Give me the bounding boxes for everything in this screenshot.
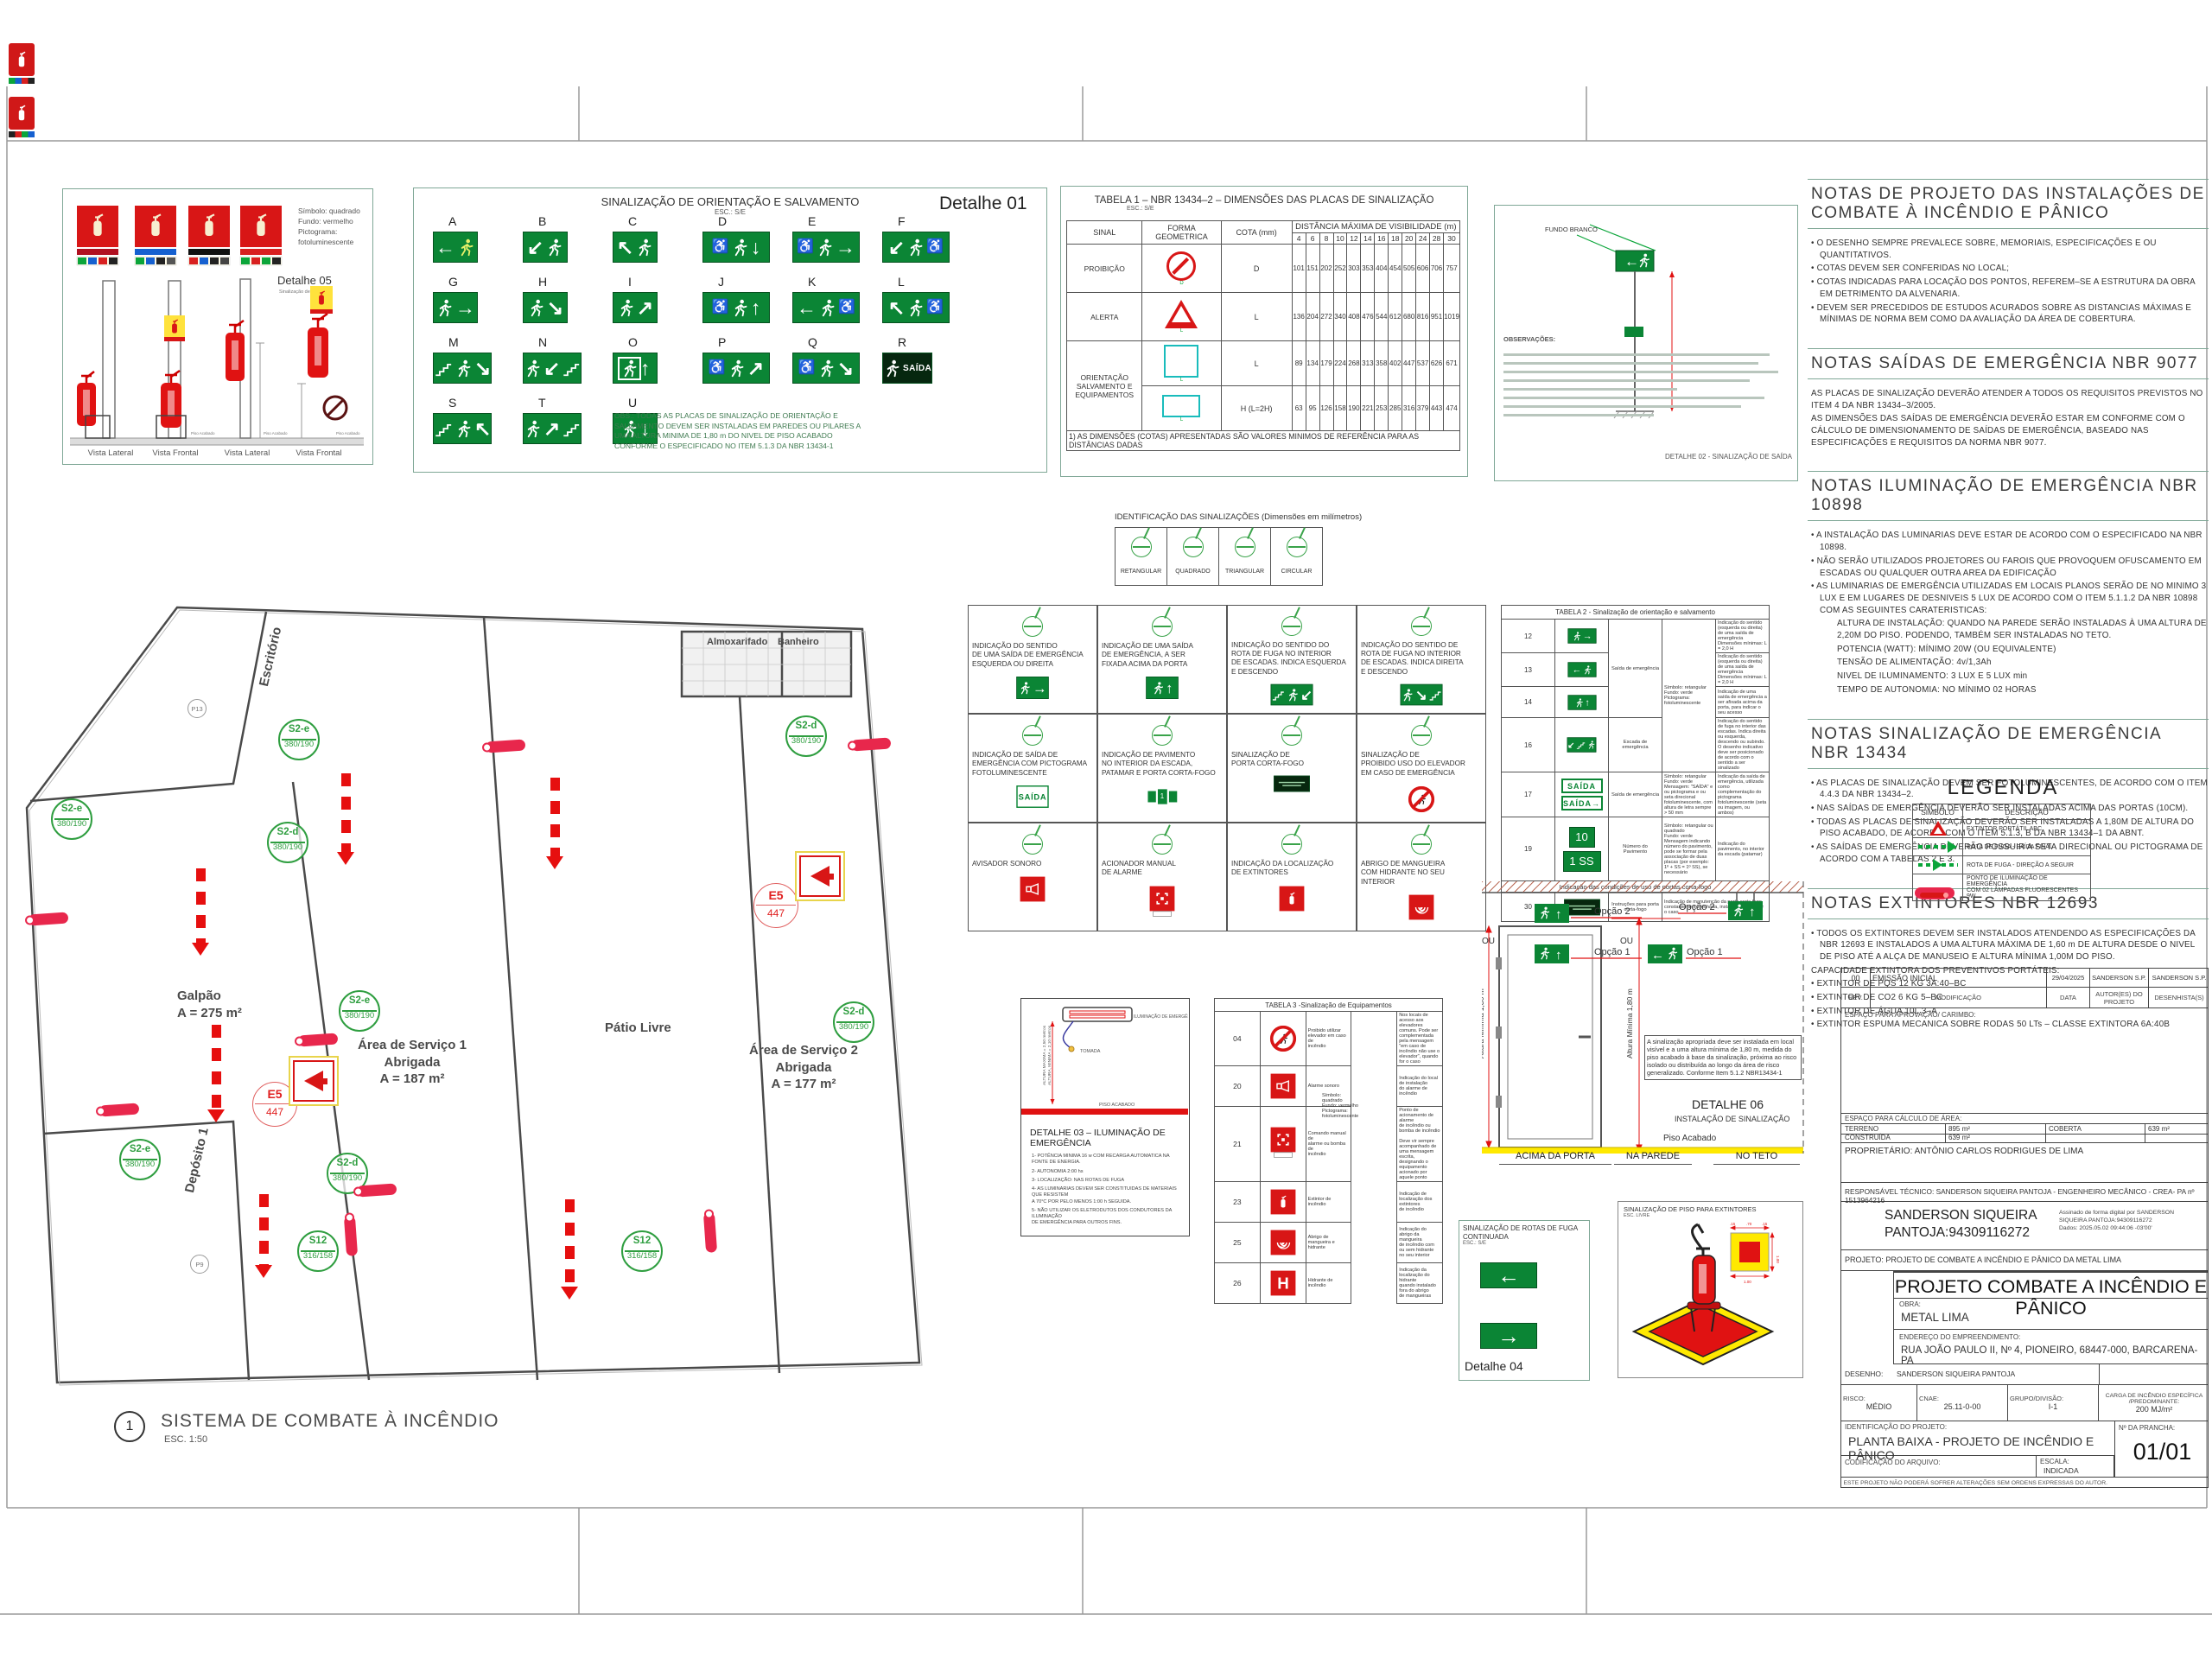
runner-icon — [818, 299, 836, 317]
identificacao-desc: AVISADOR SONORO — [972, 860, 1041, 868]
d5-legend-1: Símbolo: quadrado — [298, 207, 360, 215]
dim-letter: L — [1144, 328, 1218, 334]
arrow-icon: → — [836, 238, 855, 257]
t3-num: 25 — [1215, 1223, 1261, 1263]
signage-tag-balloon: S2-d380/190 — [785, 715, 827, 757]
dim-100: 1.00 — [1744, 1280, 1751, 1284]
identificacao-cell: INDICAÇÃO DO SENTIDO DE UMA SAÍDA DE EME… — [968, 605, 1097, 714]
tb-carga-v: 200 MJ/m² — [2136, 1405, 2173, 1414]
tb-escala-v: INDICADA — [2044, 1466, 2079, 1475]
svg-text:↑: ↑ — [1749, 905, 1756, 919]
runner-icon — [1416, 794, 1427, 804]
d2-obs-title: OBSERVAÇÕES: — [1503, 335, 1555, 343]
t1-value: 379 — [1416, 386, 1430, 431]
identificacao-desc: INDICAÇÃO DO SENTIDO DE UMA SAÍDA DE EME… — [972, 642, 1084, 669]
tb-construida-l: CONSTRUÍDA — [1845, 1134, 1891, 1141]
identificacao-cell: SINALIZAÇÃO DE PROIBIDO USO DO ELEVADOR … — [1357, 714, 1486, 823]
tb-desenho-v: SANDERSON SIQUEIRA PANTOJA — [1897, 1370, 2015, 1378]
plan-esc: ESC. 1:50 — [164, 1434, 207, 1445]
tb-footer: ESTE PROJETO NÃO PODERÁ SOFRER ALTERAÇÕE… — [1841, 1480, 2107, 1486]
panel-piso-extintores: SINALIZAÇÃO DE PISO PARA EXTINTORES ESC.… — [1618, 1201, 1803, 1378]
equipment-sign: ♿ H — [1270, 1190, 1295, 1215]
room-label: Área de Serviço 1 Abrigada A = 187 m² — [339, 1037, 486, 1088]
runner-icon — [1018, 681, 1031, 694]
sign-pictogram: ↙ ♿ H — [1270, 684, 1313, 706]
t1-h-dist: DISTÂNCIA MÁXIMA DE VISIBILIDADE (m) — [1292, 221, 1459, 233]
identificacao-desc: ABRIGO DE MANGUEIRA COM HIDRANTE NO SEU … — [1361, 860, 1445, 887]
tb-endereco-v: RUA JOÃO PAULO II, Nº 4, PIONEIRO, 68447… — [1901, 1345, 2208, 1366]
t1-dist-col: 6 — [1306, 233, 1319, 245]
arrow-icon: → — [455, 298, 475, 318]
tb-rev-des: SANDERSON S.P. — [2149, 969, 2209, 987]
d4-esc: ESC.: S/E — [1463, 1241, 1589, 1246]
stairs-icon — [1428, 688, 1442, 702]
room-label: Pátio Livre — [605, 1020, 671, 1037]
stairs-icon — [434, 359, 453, 378]
t2-sign: 10 1 SS — [1555, 817, 1609, 881]
runner-icon — [731, 299, 749, 317]
tb-terreno-l: TERRENO — [1845, 1125, 1878, 1133]
t1-value: 476 — [1361, 293, 1375, 341]
alarm-button-icon — [1154, 891, 1169, 906]
hydrant-letter-icon: H — [1277, 1274, 1289, 1293]
t3-num: 26 — [1215, 1263, 1261, 1304]
dim-15: .15 — [1730, 1222, 1736, 1226]
tag-balloon-icon — [1152, 834, 1173, 855]
runner-icon — [1401, 688, 1414, 701]
runner-icon — [545, 238, 563, 257]
legend-symbol — [1913, 856, 1963, 874]
signage-tag-balloon: S2-d380/190 — [833, 1001, 874, 1043]
signage-plate-cell: A ← ♿ H — [433, 214, 523, 263]
arrow-icon: ↑ — [640, 359, 651, 378]
view-label: Vista Frontal — [296, 448, 341, 458]
alarm-button-icon — [1275, 1132, 1290, 1147]
tb-obra-v: METAL LIMA — [1901, 1311, 1969, 1324]
signage-plate-cell: B ↙ ♿ H — [523, 214, 613, 263]
tb-proprietario: PROPRIETÁRIO: ANTÔNIO CARLOS RODRIGUES D… — [1845, 1147, 2083, 1156]
d6-subtitle: INSTALAÇÃO DE SINALIZAÇÃO — [1675, 1115, 1789, 1123]
shape-cell: RETANGULAR — [1115, 527, 1167, 586]
t3-sym-merged: Símbolo: quadrado Fundo: vermelho Pictog… — [1322, 1093, 1360, 1119]
panel-detalhe-01: SINALIZAÇÃO DE ORIENTAÇÃO E SALVAMENTO E… — [413, 188, 1047, 473]
t1-value: 252 — [1333, 245, 1347, 293]
t3-sign: ♿ H — [1260, 1066, 1306, 1107]
identificacao-cell: ACIONADOR MANUAL DE ALARME ♿ H — [1097, 823, 1227, 931]
extinguisher-icon — [12, 50, 31, 69]
signage-plate-cell: C ↖ ♿ H — [613, 214, 702, 263]
note-line: O DESENHO SEMPRE PREVALECE SOBRE, MEMORI… — [1808, 238, 2209, 261]
arrow-icon: ↘ — [1415, 688, 1427, 702]
d6-piso: Piso Acabado — [1663, 1134, 1716, 1143]
t2-sym: Símbolo: retangular Fundo: verde Pictogr… — [1662, 620, 1716, 772]
d6-title: DETALHE 06 — [1692, 1097, 1764, 1111]
equipment-sign: ♿ H — [1270, 1230, 1295, 1255]
exit-sign-plate: ↘ ♿ H — [433, 353, 492, 384]
altura-label: Altura Mínima 1,80 m — [1482, 988, 1485, 1058]
t1-value: 474 — [1444, 386, 1460, 431]
wheelchair-icon: ♿ — [712, 301, 729, 315]
wheelchair-icon: ♿ — [838, 301, 855, 315]
tb-construida-v: 639 m² — [1948, 1134, 1970, 1141]
t1-value: 63 — [1292, 386, 1306, 431]
tb-h-autor: AUTOR(ES) DO PROJETO — [2090, 988, 2149, 1007]
sign-pictogram: ♿ H — [1409, 894, 1434, 919]
extinguisher-icon — [1275, 1194, 1290, 1209]
tb-rev-data: 29/04/2025 — [2047, 969, 2090, 987]
identificacao-desc: INDICAÇÃO DO SENTIDO DE ROTA DE FUGA NO … — [1361, 641, 1464, 677]
d6-note-box: A sinalização apropriada deve ser instal… — [1644, 1035, 1802, 1080]
t1-r4-cota: H (L=2H) — [1221, 386, 1292, 431]
t1-value: 126 — [1319, 386, 1333, 431]
t3-sign: ♿ H — [1260, 1012, 1306, 1066]
t3-title: TABELA 3 -Sinalização de Equipamentos — [1215, 999, 1443, 1012]
tb-carga-l: CARGA DE INCÊNDIO ESPECÍFICA /PREDOMINAN… — [2101, 1393, 2208, 1405]
svg-text:↑: ↑ — [1555, 907, 1562, 922]
note-line: ALTURA DE INSTALAÇÃO: QUANDO NA PAREDE S… — [1808, 618, 2209, 641]
panel-detalhe-02: FUNDO BRANCO ← OBSERVAÇÕES: DETALHE 02 -… — [1494, 205, 1798, 481]
tb-risco-l: RISCO: — [1843, 1395, 1866, 1402]
t2-cat: Escada de emergência — [1609, 718, 1662, 772]
stamp-icon — [9, 43, 35, 76]
identificacao-desc: INDICAÇÃO DE SAÍDA DE EMERGÊNCIA COM PIC… — [972, 751, 1087, 778]
t1-value: 706 — [1430, 245, 1444, 293]
sign-pictogram: ♿ H — [1274, 775, 1310, 791]
d5-legend-3: Pictograma: — [298, 227, 337, 236]
sign-pictogram: ↑ ♿ H — [1146, 677, 1178, 699]
arrow-icon: → — [1033, 680, 1047, 695]
note-line: AS PLACAS DE SINALIZAÇÃO DEVERÃO ATENDER… — [1808, 388, 2209, 411]
tb-calc: ESPAÇO PARA CÁLCULO DE ÁREA: — [1845, 1115, 1961, 1122]
alert-triangle-shape: L — [1142, 293, 1221, 341]
plate-letter: J — [718, 275, 724, 289]
tb-projeto: PROJETO: PROJETO DE COMBATE A INCÊNDIO E… — [1845, 1255, 2121, 1264]
signage-plate-cell: P ↗ ♿ H — [702, 335, 792, 384]
arrow-icon: ↗ — [543, 419, 560, 439]
t1-value: 505 — [1402, 245, 1416, 293]
shape-label: TRIANGULAR — [1219, 569, 1270, 575]
identificacao-desc: INDICAÇÃO DE UMA SAÍDA DE EMERGÊNCIA, A … — [1102, 642, 1193, 669]
t2-sign: ↑ — [1555, 687, 1609, 718]
t1-value: 316 — [1402, 386, 1416, 431]
opcao2-label: Opção 2 — [1679, 902, 1715, 912]
t3-desc: Indicação do local de instalação do alar… — [1397, 1066, 1443, 1107]
wheelchair-icon: ♿ — [926, 301, 944, 315]
signage-tag-balloon: S2-e380/190 — [119, 1139, 161, 1180]
t3-sign: ♿ H — [1260, 1182, 1306, 1223]
t1-r3-cota: L — [1221, 341, 1292, 386]
point-marker: P9 — [190, 1255, 209, 1274]
identificacao-cell: INDICAÇÃO DO SENTIDO DE ROTA DE FUGA NO … — [1357, 605, 1486, 714]
view-label: Vista Lateral — [88, 448, 134, 458]
dim-100: 1.00 — [1776, 1255, 1780, 1263]
t1-value: 680 — [1402, 293, 1416, 341]
d3-lum-label: ILUMINAÇÃO DE EMERGÊNCIA — [1134, 1013, 1188, 1020]
stamp-icon-chips — [9, 131, 35, 137]
horn-icon — [1274, 1078, 1291, 1095]
t1-value: 224 — [1333, 341, 1347, 386]
route-arrow-left-sign: ← — [1480, 1262, 1537, 1288]
d5-legend-4: fotoluminescente — [298, 238, 354, 246]
panel-detalhe-03: ILUMINAÇÃO DE EMERGÊNCIA TOMADA ALTURA M… — [1020, 998, 1190, 1236]
exit-sign-plate: ↙ ♿ H — [523, 232, 568, 263]
legend-title: LEGENDA — [1912, 776, 2094, 800]
exit-sign-plate: ↗ ♿ H — [702, 353, 770, 384]
panel-detalhe-04: SINALIZAÇÃO DE ROTAS DE FUGA CONTINUADA … — [1459, 1220, 1590, 1381]
tb-terreno-v: 895 m² — [1948, 1125, 1970, 1133]
plate-letter: H — [538, 275, 547, 289]
exit-sign-plate: → ♿ H — [433, 292, 478, 323]
drawing-sheet: Símbolo: quadrado Fundo: vermelho Pictog… — [0, 0, 2212, 1659]
t2-num: 19 — [1502, 817, 1555, 881]
identificacao-desc: SINALIZAÇÃO DE PORTA CORTA-FOGO — [1231, 751, 1304, 769]
t3-num: 21 — [1215, 1107, 1261, 1182]
t3-desc: Nos locais de acesso aos elevadores comu… — [1397, 1012, 1443, 1066]
tb-obra-l: OBRA: — [1899, 1300, 1921, 1308]
t1-r1-sinal: PROIBIÇÃO — [1067, 245, 1142, 293]
tb-h-rev: REV. — [1841, 988, 1871, 1007]
legend-desc: ROTA DE FUGA - SAÍDA FINAL — [1963, 838, 2091, 856]
panel-detalhe-05: Símbolo: quadrado Fundo: vermelho Pictog… — [62, 188, 373, 465]
t1-value: 101 — [1292, 245, 1306, 293]
signage-plate-cell: N ↙ ♿ H — [523, 335, 613, 384]
signage-tag-balloon: S2-e380/190 — [278, 719, 320, 760]
plate-letter: L — [898, 275, 905, 289]
exit-sign-plate: ↙ ♿ H — [882, 232, 950, 263]
signage-plate-cell: F ↙ ♿ H — [882, 214, 972, 263]
runner-icon — [1152, 681, 1165, 694]
extinguisher-tag-balloon: E5447 — [753, 883, 798, 928]
plate-letter: O — [628, 335, 638, 349]
t2-cat: Saída de emergência — [1609, 772, 1662, 817]
t1-dist-col: 28 — [1430, 233, 1444, 245]
t3-sign: ♿ H — [1260, 1107, 1306, 1182]
exit-sign-plate: ↓ ♿ H — [702, 232, 770, 263]
t1-value: 303 — [1347, 245, 1361, 293]
room-label: Banheiro — [778, 636, 819, 648]
exit-sign-plate: ↘ ♿ H — [523, 292, 568, 323]
plate-letter: A — [448, 214, 456, 228]
identificacao-desc: INDICAÇÃO DE PAVIMENTO NO INTERIOR DA ES… — [1102, 751, 1216, 778]
dim-letter: D — [1144, 281, 1218, 286]
plate-letter: I — [628, 275, 632, 289]
identificacao-title: IDENTIFICAÇÃO DAS SINALIZAÇÕES (Dimensõe… — [1115, 512, 1362, 522]
tb-rev-num: 00 — [1841, 969, 1871, 987]
t1-value: 454 — [1389, 245, 1402, 293]
t1-value: 340 — [1333, 293, 1347, 341]
t2-desc: Indicação do sentido de fuga no interior… — [1716, 718, 1770, 772]
plate-letter: M — [448, 335, 459, 349]
identificacao-cell: INDICAÇÃO DA LOCALIZAÇÃO DE EXTINTORES ♿… — [1227, 823, 1357, 931]
identificacao-cell: INDICAÇÃO DE PAVIMENTO NO INTERIOR DA ES… — [1097, 714, 1227, 823]
piso-acabado-label: Piso Acabado — [336, 431, 360, 435]
t1-r2-cota: L — [1221, 293, 1292, 341]
opcao2-label: Opção 2 — [1594, 906, 1630, 917]
tb-h-data: DATA — [2047, 988, 2090, 1007]
runner-icon — [1286, 688, 1299, 701]
t1-value: 268 — [1347, 341, 1361, 386]
tag-balloon-icon — [1281, 725, 1302, 746]
d3-title: DETALHE 03 – ILUMINAÇÃO DE EMERGÊNCIA — [1030, 1128, 1189, 1148]
tag-balloon-icon — [1411, 616, 1432, 636]
exit-sign-plate: ↖ ♿ H — [613, 232, 658, 263]
t2-num: 17 — [1502, 772, 1555, 817]
legend-desc: PONTO DE ILUMINAÇÃO DE EMERGÊNCIA COM 02… — [1963, 874, 2091, 901]
t1-value: 626 — [1430, 341, 1444, 386]
signage-tag-balloon: S12316/158 — [621, 1230, 663, 1272]
signage-plate-cell: R ♿ SAÍDA H — [882, 335, 972, 384]
t1-value: 402 — [1389, 341, 1402, 386]
runner-icon — [816, 238, 834, 257]
tb-signature-info: Assinado de forma digital por SANDERSON … — [2059, 1209, 2174, 1233]
hose-spiral-icon — [1414, 899, 1430, 915]
escape-route-arrow — [549, 778, 561, 868]
note-line: A INSTALAÇÃO DAS LUMINARIAS DEVE ESTAR D… — [1808, 530, 2209, 553]
tag-balloon-icon — [1411, 725, 1432, 746]
pe-esc: ESC. LIVRE — [1624, 1213, 1802, 1218]
d3-tomada-label: TOMADA — [1080, 1049, 1101, 1054]
tag-balloon-icon — [1152, 725, 1173, 746]
t1-value: 134 — [1306, 341, 1319, 386]
t2-num: 14 — [1502, 687, 1555, 718]
shape-label: CIRCULAR — [1271, 569, 1322, 575]
plate-letter: D — [718, 214, 727, 228]
t1-value: 158 — [1333, 386, 1347, 431]
t2-title: TABELA 2 - Sinalização de orientação e s… — [1502, 606, 1770, 620]
t3-name: Proibido utilizar elevador em caso de in… — [1306, 1012, 1351, 1066]
tb-prancha-l: Nº DA PRANCHA: — [2119, 1424, 2175, 1432]
t2-desc: Indicação do sentido (esquerda ou direit… — [1716, 620, 1770, 653]
stairs-icon — [1271, 688, 1285, 702]
legend-symbol — [1913, 820, 1963, 838]
tb-coberta-v: 639 m² — [2148, 1125, 2170, 1133]
t1-dist-col: 18 — [1389, 233, 1402, 245]
signage-plate-cell: T ↗ ♿ H — [523, 396, 613, 444]
tb-rev-autor: SANDERSON S.P. — [2090, 969, 2149, 987]
t3-desc: Indicação de localização dos extintores … — [1397, 1182, 1443, 1223]
t1-value: 202 — [1319, 245, 1333, 293]
stairs-icon — [434, 419, 453, 438]
detalhe-05-drawing: Símbolo: quadrado Fundo: vermelho Pictog… — [63, 189, 372, 463]
t1-title: TABELA 1 – NBR 13434–2 – DIMENSÕES DAS P… — [1066, 195, 1462, 206]
arrow-icon: ↙ — [543, 359, 560, 378]
runner-icon — [906, 299, 925, 317]
t1-value: 443 — [1430, 386, 1444, 431]
t3-name: Abrigo de mangueira e hidrante — [1306, 1223, 1351, 1263]
tb-rev-mod: EMISSÃO INICIAL — [1871, 969, 2047, 987]
note-line: TEMPO DE AUTONOMIA: NO MÍNIMO 02 HORAS — [1808, 684, 2209, 696]
tb-grupo-v: I-1 — [2049, 1402, 2058, 1411]
signage-tag-balloon: S2-e380/190 — [339, 990, 380, 1032]
tb-escala-l: ESCALA: — [2040, 1458, 2069, 1465]
tag-balloon-icon — [1022, 725, 1043, 746]
shape-cell: QUADRADO — [1166, 527, 1219, 586]
t3-name: Extintor de incêndio — [1306, 1182, 1351, 1223]
piso-acabado-label: Piso Acabado — [191, 431, 215, 435]
plate-text: SAÍDA — [903, 364, 931, 373]
arrow-icon: ↓ — [751, 238, 761, 257]
notes-column: NOTAS DE PROJETO DAS INSTALAÇÕES DE COMB… — [1808, 179, 2209, 1053]
rect-shape: L — [1142, 386, 1221, 431]
runner-icon — [883, 359, 901, 378]
identificacao-cell: INDICAÇÃO DO SENTIDO DO ROTA DE FUGA NO … — [1227, 605, 1357, 714]
t1-value: 179 — [1319, 341, 1333, 386]
arrow-icon: ↑ — [1166, 680, 1173, 695]
t3-name: Hidrante de incêndio — [1306, 1263, 1351, 1304]
t1-value: 1019 — [1444, 293, 1460, 341]
legend-desc: ROTA DE FUGA - DIREÇÃO A SEGUIR — [1963, 856, 2091, 874]
runner-icon — [524, 359, 542, 378]
d3-piso: PISO ACABADO — [1099, 1103, 1135, 1108]
d6-pos-teto: NO TETO — [1713, 1151, 1800, 1165]
t2-cat: Saída de emergência — [1609, 620, 1662, 718]
signage-tag-balloon: S12316/158 — [297, 1230, 339, 1272]
t3-num: 04 — [1215, 1012, 1261, 1066]
runner-icon — [527, 299, 545, 317]
tb-signature-name: SANDERSON SIQUEIRA PANTOJA:94309116272 — [1885, 1207, 2037, 1242]
t3-desc: Ponto de acionamento de alarme de incênd… — [1397, 1107, 1443, 1182]
t1-dist-col: 12 — [1347, 233, 1361, 245]
dim-70: .70 — [1746, 1222, 1752, 1226]
pe-title: SINALIZAÇÃO DE PISO PARA EXTINTORES — [1624, 1205, 1802, 1213]
identificacao-desc: INDICAÇÃO DO SENTIDO DO ROTA DE FUGA NO … — [1231, 641, 1346, 677]
wheelchair-icon: ♿ — [797, 240, 814, 254]
arrow-icon: ← — [797, 298, 817, 318]
svg-text:↑: ↑ — [1555, 948, 1562, 963]
hose-spiral-icon — [1274, 1235, 1291, 1251]
note-line: TENSÃO DE ALIMENTAÇÃO: 4v/1,3Ah — [1808, 657, 2209, 669]
t1-h-sinal: SINAL — [1067, 221, 1142, 245]
tb-cnae-v: 25.11-0-00 — [1944, 1402, 1981, 1411]
note-section-title: NOTAS SINALIZAÇÃO DE EMERGÊNCIA NBR 1343… — [1808, 719, 2209, 769]
sign-pictogram: ♿ H — [1150, 886, 1175, 911]
extinguisher-floor-sign — [289, 1056, 339, 1106]
room-label: Galpão A = 275 m² — [177, 988, 242, 1021]
t1-value: 190 — [1347, 386, 1361, 431]
runner-icon — [635, 238, 653, 257]
tabela-3: TABELA 3 -Sinalização de Equipamentos 04… — [1214, 998, 1443, 1304]
sign-pictogram: ♿ H — [1280, 886, 1305, 911]
arrow-icon: ↖ — [617, 238, 633, 257]
t1-value: 612 — [1389, 293, 1402, 341]
t1-value: 606 — [1416, 245, 1430, 293]
sign-pictogram: ♿ SAÍDA H — [1016, 785, 1048, 808]
exit-sign-plate: ↑ ♿ H — [702, 292, 770, 323]
tb-grupo-l: GRUPO/DIVISÃO: — [2010, 1395, 2063, 1402]
extinguisher-icon — [1284, 891, 1299, 906]
tb-aprovacao: ESPAÇO PARA APROVAÇÃO/ CARIMBO: — [1845, 1011, 1976, 1019]
note-line: COTAS INDICADAS PARA LOCAÇÃO DOS PONTOS,… — [1808, 276, 2209, 300]
t2-desc: Indicação do sentido (esquerda ou direit… — [1716, 653, 1770, 687]
signage-plate-cell: I ↗ ♿ H — [613, 275, 702, 323]
arrow-icon: ↗ — [637, 298, 653, 318]
d3-note-line: 1- POTÊNCIA MINIMA 16 w COM RECARGA AUTO… — [1032, 1154, 1184, 1166]
dim-letter: L — [1144, 378, 1218, 383]
altura-label: Altura Mínima 1,80 m — [1625, 988, 1634, 1058]
escape-route-arrow — [194, 868, 207, 955]
note-section: NOTAS ILUMINAÇÃO DE EMERGÊNCIA NBR 10898… — [1808, 471, 2209, 696]
t1-esc: ESC.: S/E — [1127, 206, 1462, 212]
sign-pictogram: ♿ H — [1408, 786, 1434, 812]
signage-tag-balloon: S2-d380/190 — [267, 822, 308, 863]
tag-balloon-icon — [1411, 834, 1432, 855]
runner-icon — [731, 238, 749, 257]
t1-value: 313 — [1361, 341, 1375, 386]
stairs-icon — [562, 359, 581, 378]
t1-value: 757 — [1444, 245, 1460, 293]
room-label: Almoxarifado — [707, 636, 767, 648]
title-block: 00 EMISSÃO INICIAL 29/04/2025 SANDERSON … — [1840, 968, 2209, 1488]
